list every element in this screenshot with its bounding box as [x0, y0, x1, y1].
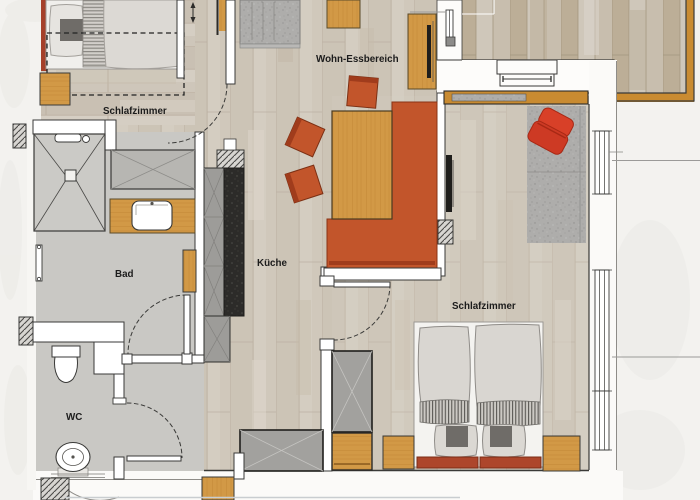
svg-text:WC: WC [66, 412, 82, 423]
svg-text:Schlafzimmer: Schlafzimmer [103, 106, 167, 117]
svg-text:Küche: Küche [257, 258, 287, 269]
svg-text:Wohn-Essbereich: Wohn-Essbereich [316, 54, 399, 65]
svg-text:Bad: Bad [115, 269, 134, 280]
svg-text:Schlafzimmer: Schlafzimmer [452, 301, 516, 312]
